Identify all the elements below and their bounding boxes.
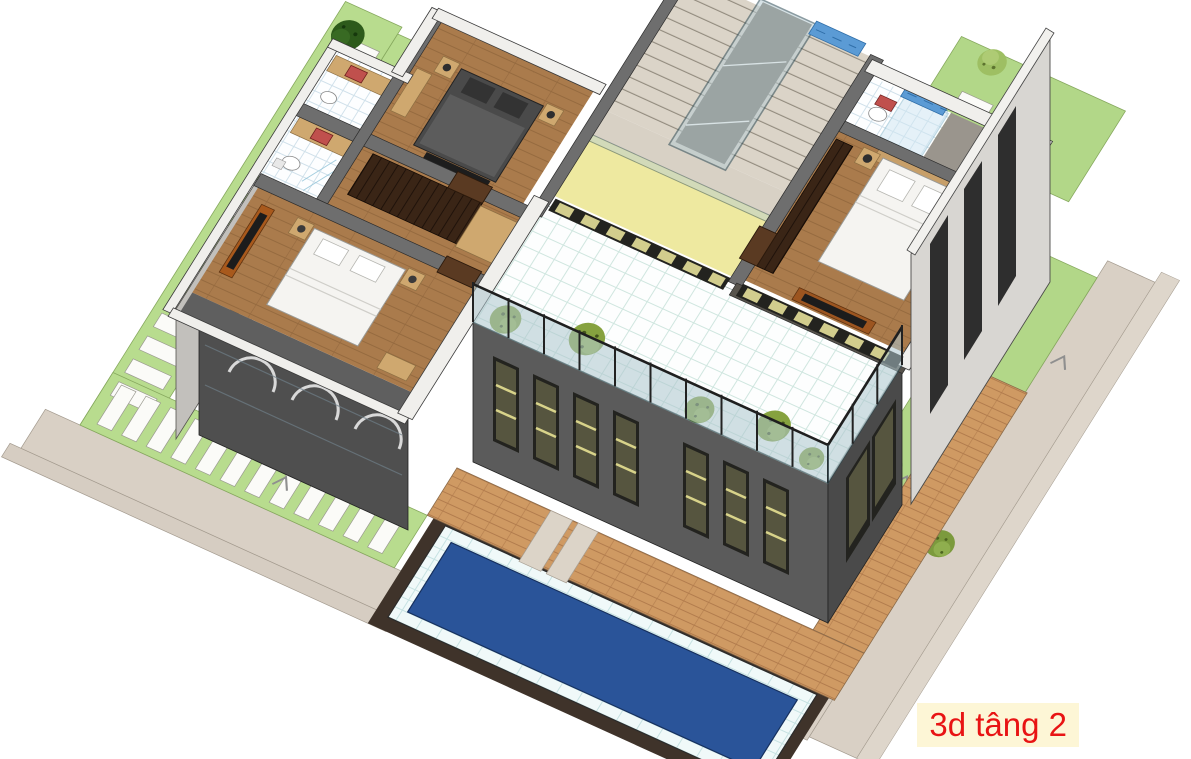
floor-plan-3d-render — [0, 0, 1191, 759]
floor-label: 3d tâng 2 — [917, 703, 1079, 747]
render-canvas: 3d tâng 2 — [0, 0, 1191, 759]
